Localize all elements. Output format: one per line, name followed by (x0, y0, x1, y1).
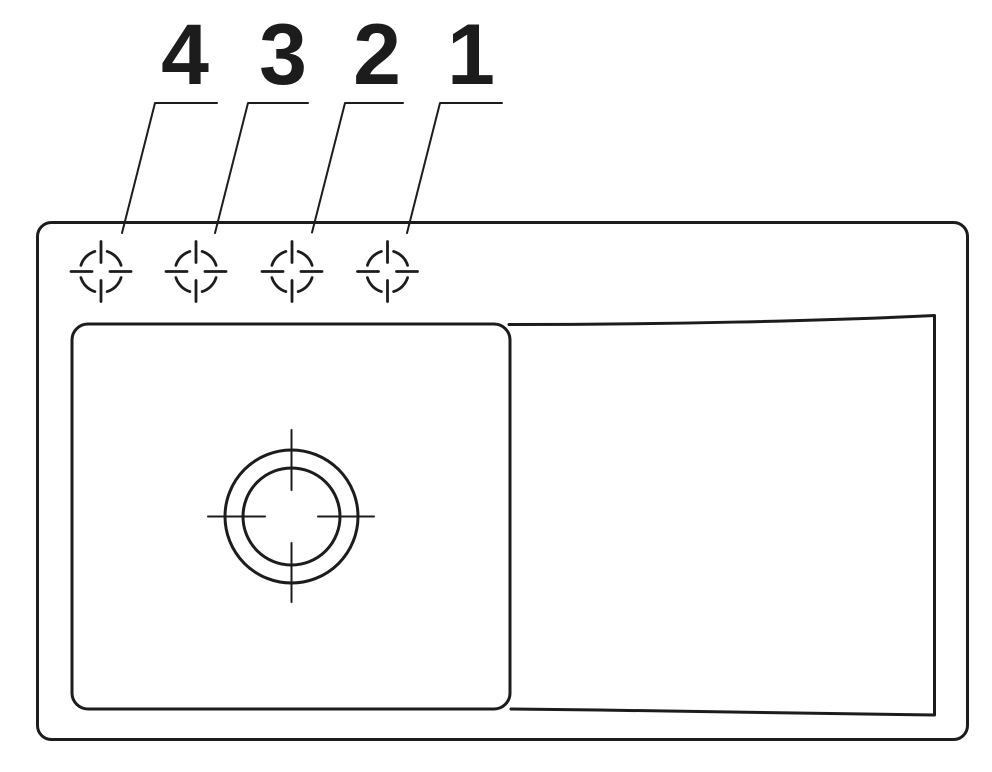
hole-marker-arc (298, 251, 312, 265)
hole-marker (166, 242, 226, 302)
leader-line (122, 103, 217, 233)
hole-marker-arc (176, 278, 190, 292)
hole-marker-arc (81, 251, 95, 265)
drainboard-outline (509, 316, 935, 716)
callout-number: 4 (161, 7, 209, 103)
hole-marker-arc (394, 251, 408, 265)
hole-marker-arc (81, 278, 95, 292)
hole-marker-arc (202, 251, 216, 265)
hole-marker-arc (298, 278, 312, 292)
hole-marker-arc (272, 251, 286, 265)
hole-marker-arc (367, 251, 381, 265)
hole-marker-arc (272, 278, 286, 292)
callouts-layer: 4321 (71, 7, 502, 302)
hole-marker-arc (394, 278, 408, 292)
drain-assembly (208, 430, 374, 602)
drain-centerlines (208, 430, 374, 602)
hole-marker (358, 242, 418, 302)
leader-line (407, 103, 502, 233)
hole-marker (262, 242, 322, 302)
technical-drawing-page: 4321 (0, 0, 992, 772)
callout-number: 2 (353, 7, 401, 103)
sink-outer-rim (38, 223, 968, 740)
callout-number: 1 (447, 7, 495, 103)
sink-bowl (72, 324, 510, 709)
hole-marker (71, 242, 131, 302)
hole-marker-arc (367, 278, 381, 292)
hole-marker-arc (107, 278, 121, 292)
callout-number: 3 (259, 7, 307, 103)
sink-top-view-drawing: 4321 (0, 0, 992, 772)
hole-marker-arc (176, 251, 190, 265)
hole-marker-arc (202, 278, 216, 292)
hole-marker-arc (107, 251, 121, 265)
sink-geometry (38, 223, 968, 740)
leader-line (312, 103, 403, 233)
leader-line (215, 103, 308, 233)
